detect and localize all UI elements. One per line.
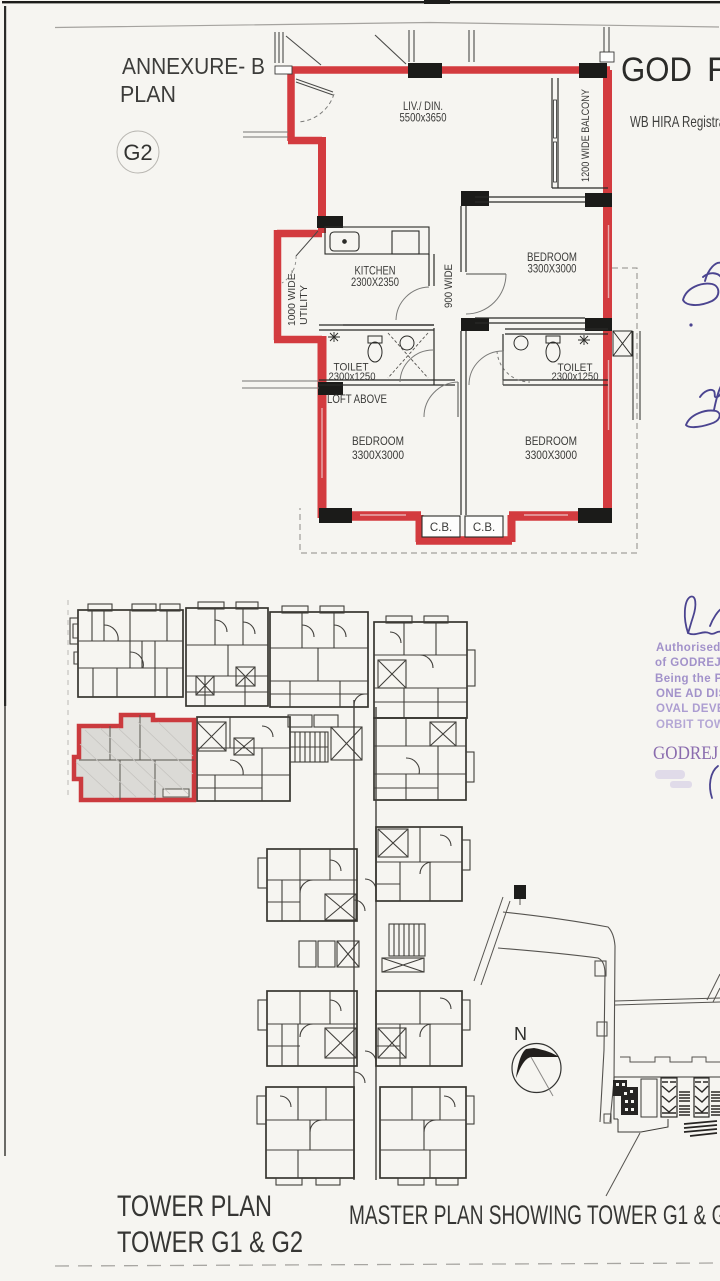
svg-text:TOWER G1 & G2: TOWER G1 & G2 (117, 1226, 303, 1259)
svg-text:ORBIT TOW: ORBIT TOW (656, 719, 720, 731)
svg-text:2300x1250: 2300x1250 (552, 371, 599, 383)
svg-text:UTILITY: UTILITY (298, 285, 310, 325)
svg-text:2300X2350: 2300X2350 (351, 275, 399, 289)
svg-text:BEDROOM: BEDROOM (352, 434, 404, 448)
svg-text:C.B.: C.B. (473, 522, 495, 534)
svg-text:G2: G2 (123, 140, 152, 165)
svg-text:Being the Pr: Being the Pr (655, 673, 720, 685)
svg-text:PLAN: PLAN (120, 81, 176, 107)
svg-text:3300X3000: 3300X3000 (528, 262, 577, 276)
svg-text:GODREJ PROP: GODREJ PROP (653, 743, 720, 764)
svg-text:Authorised Si: Authorised Si (656, 642, 720, 654)
svg-text:2300x1250: 2300x1250 (329, 371, 376, 383)
svg-text:1000 WIDE-: 1000 WIDE- (286, 270, 298, 326)
svg-text:GOD: GOD (621, 51, 692, 89)
svg-text:900 WIDE: 900 WIDE (443, 264, 455, 308)
svg-text:WB HIRA Registration No.: WB HIRA Registration No. (630, 114, 720, 131)
svg-text:3300X3000: 3300X3000 (352, 448, 404, 462)
svg-text:of GODREJ P: of GODREJ P (655, 657, 720, 669)
svg-text:C.B.: C.B. (430, 522, 452, 534)
svg-text:TOWER PLAN: TOWER PLAN (117, 1190, 272, 1223)
svg-text:BEDROOM: BEDROOM (525, 434, 577, 448)
svg-text:1200 WIDE BALCONY: 1200 WIDE BALCONY (580, 88, 592, 182)
svg-text:MASTER PLAN SHOWING TOWER G1 &: MASTER PLAN SHOWING TOWER G1 & G2 (349, 1200, 720, 1230)
svg-text:OVAL DEVE: OVAL DEVE (656, 703, 720, 715)
svg-text:N: N (514, 1024, 527, 1044)
svg-text:3300X3000: 3300X3000 (525, 448, 577, 462)
svg-text:LOFT ABOVE: LOFT ABOVE (327, 394, 387, 406)
svg-text:ONE AD DIS: ONE AD DIS (656, 688, 720, 700)
svg-text:5500x3650: 5500x3650 (400, 111, 447, 125)
svg-text:ANNEXURE- B: ANNEXURE- B (122, 53, 265, 79)
svg-text:REJ: REJ (707, 51, 720, 89)
